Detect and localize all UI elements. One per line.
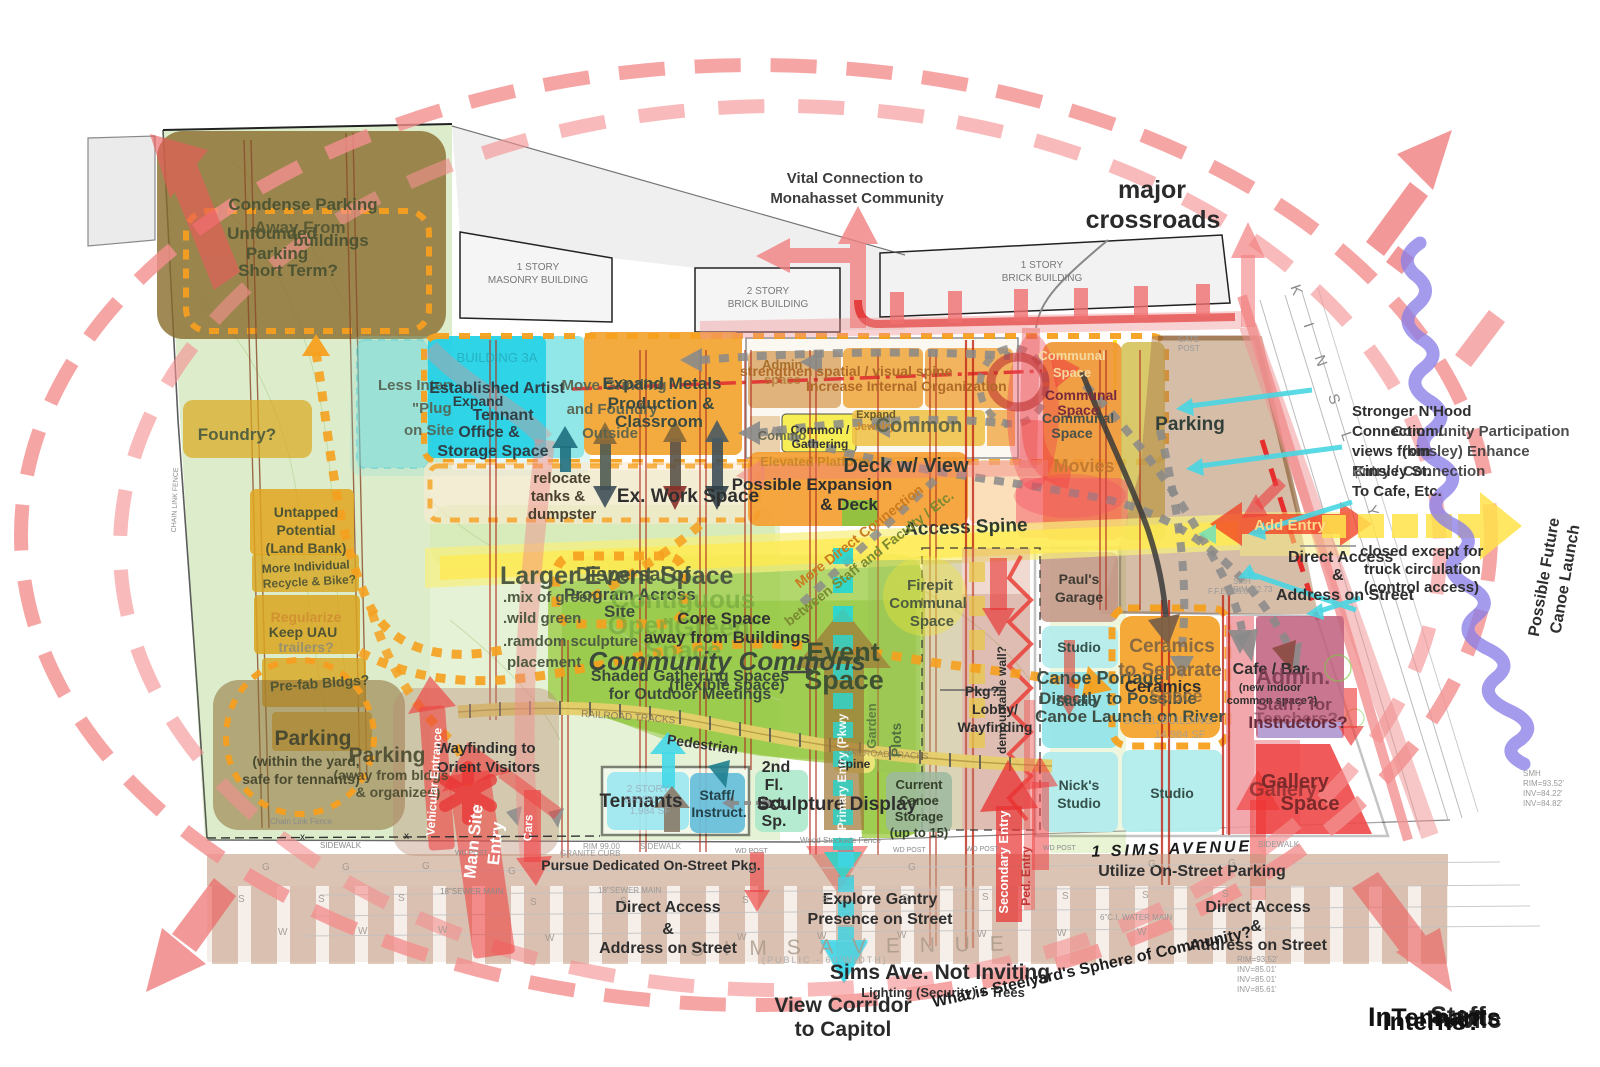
svg-text:Increase Internal Organization: Increase Internal Organization — [806, 378, 1007, 394]
svg-text:S: S — [982, 892, 989, 903]
svg-text:INV=84.82': INV=84.82' — [1523, 799, 1563, 808]
svg-text:Secondary Entry: Secondary Entry — [996, 810, 1011, 914]
svg-text:18"SEWER MAIN: 18"SEWER MAIN — [440, 887, 504, 896]
svg-text:2 STORY: 2 STORY — [627, 784, 670, 795]
svg-text:Space: Space — [1051, 425, 1092, 441]
svg-text:Direct Access: Direct Access — [1205, 899, 1310, 916]
svg-text:Communal: Communal — [1045, 387, 1117, 403]
svg-text:Direct Access: Direct Access — [615, 899, 720, 916]
svg-text:W: W — [438, 925, 448, 936]
svg-text:Monahasset Community: Monahasset Community — [770, 190, 944, 207]
svg-text:W: W — [545, 933, 555, 944]
svg-text:space: space — [764, 372, 801, 387]
svg-text:Garden: Garden — [864, 703, 879, 749]
svg-text:Keep UAU: Keep UAU — [269, 624, 337, 640]
svg-text:Space: Space — [910, 613, 954, 630]
svg-text:Movies: Movies — [1053, 456, 1114, 476]
svg-text:"Plug: "Plug — [412, 400, 452, 417]
svg-text:G: G — [422, 861, 430, 872]
svg-text:Space: Space — [1053, 365, 1091, 380]
svg-text:S: S — [318, 894, 325, 905]
svg-text:Ceramics: Ceramics — [1129, 636, 1215, 657]
svg-text:Potential: Potential — [276, 522, 335, 538]
svg-text:Primary Entry (Pkwy: Primary Entry (Pkwy — [835, 713, 849, 830]
svg-text:S: S — [902, 893, 909, 904]
svg-text:6"C.I. WATER MAIN: 6"C.I. WATER MAIN — [1100, 913, 1172, 922]
svg-text:SMH: SMH — [1523, 769, 1541, 778]
svg-text:Instruct.: Instruct. — [691, 804, 746, 820]
svg-text:G: G — [908, 862, 916, 873]
svg-text:relocate: relocate — [533, 470, 591, 487]
svg-text:G: G — [1148, 859, 1156, 870]
svg-text:2nd: 2nd — [762, 759, 790, 776]
svg-text:&: & — [1332, 567, 1344, 584]
svg-text:Presence on Street: Presence on Street — [808, 911, 954, 928]
svg-text:Tennant: Tennant — [472, 407, 534, 424]
svg-text:Studio: Studio — [1150, 785, 1194, 801]
svg-text:Address on Street: Address on Street — [599, 940, 737, 957]
svg-text:Foundry?: Foundry? — [198, 425, 276, 444]
svg-text:Canoe: Canoe — [899, 793, 939, 808]
svg-text:Pkg?: Pkg? — [965, 683, 999, 699]
svg-text:& Deck: & Deck — [820, 495, 878, 514]
svg-text:&: & — [1250, 918, 1262, 935]
svg-text:(kinsley) Enhance: (kinsley) Enhance — [1402, 443, 1530, 460]
svg-text:on Site: on Site — [404, 422, 454, 439]
svg-text:WD POST: WD POST — [893, 847, 926, 854]
svg-text:to Capitol: to Capitol — [795, 1018, 892, 1041]
svg-text:In: In — [1368, 1002, 1392, 1032]
svg-text:View Corridor: View Corridor — [774, 994, 911, 1017]
svg-text:WD POST: WD POST — [455, 850, 488, 857]
svg-text:Classroom: Classroom — [615, 412, 703, 431]
svg-text:MASONRY BUILDING: MASONRY BUILDING — [488, 275, 588, 286]
svg-text:BUILDING 3A: BUILDING 3A — [457, 350, 538, 365]
svg-text:2 STORY: 2 STORY — [747, 286, 790, 297]
svg-text:Vital Connection to: Vital Connection to — [787, 170, 923, 187]
svg-text:18"SEWER MAIN: 18"SEWER MAIN — [598, 886, 662, 895]
svg-text:G: G — [1228, 858, 1236, 869]
svg-text:S: S — [398, 893, 405, 904]
svg-text:away from Buildings: away from Buildings — [644, 628, 810, 647]
svg-text:RIM=93.52': RIM=93.52' — [1237, 955, 1278, 964]
svg-text:Staff/: Staff/ — [700, 787, 735, 803]
svg-text:S: S — [530, 897, 537, 908]
svg-text:Parking: Parking — [348, 744, 425, 767]
svg-text:BRICK BUILDING: BRICK BUILDING — [728, 299, 809, 310]
svg-text:S: S — [1222, 889, 1229, 900]
svg-text:Studio: Studio — [1057, 795, 1101, 811]
svg-text:for Outdoor Meetings: for Outdoor Meetings — [609, 686, 772, 703]
svg-text:Current: Current — [896, 777, 944, 792]
svg-text:Sp.: Sp. — [762, 813, 787, 830]
svg-text:Stronger N'Hood: Stronger N'Hood — [1352, 403, 1471, 420]
svg-text:Entry / Connection: Entry / Connection — [1352, 463, 1485, 480]
svg-text:Studio: Studio — [1056, 694, 1096, 709]
svg-text:major: major — [1118, 176, 1186, 204]
svg-text:BRICK: BRICK — [625, 795, 656, 806]
svg-text:Garage: Garage — [1055, 589, 1103, 605]
svg-text:Event: Event — [806, 637, 880, 667]
svg-text:1 STORY: 1 STORY — [1021, 260, 1064, 271]
svg-text:Untapped: Untapped — [274, 504, 339, 520]
svg-text:Orient Visitors: Orient Visitors — [437, 759, 540, 776]
svg-text:Address on Street: Address on Street — [1276, 587, 1414, 604]
svg-text:(Land Bank): (Land Bank) — [266, 540, 347, 556]
svg-text:INV=85.61': INV=85.61' — [1237, 985, 1277, 994]
svg-text:Condense Parking: Condense Parking — [228, 195, 377, 214]
svg-text:W: W — [737, 932, 747, 943]
svg-text:SIDEWALK: SIDEWALK — [320, 841, 362, 850]
svg-text:STEEL BUILDING: STEEL BUILDING — [1123, 715, 1212, 727]
svg-text:INV=85.01': INV=85.01' — [1237, 965, 1277, 974]
svg-text:Communal: Communal — [1038, 348, 1105, 363]
svg-text:W: W — [977, 929, 987, 940]
svg-text:SIDEWALK: SIDEWALK — [640, 842, 682, 851]
svg-text:tanks &: tanks & — [531, 488, 585, 505]
svg-text:(up to 15): (up to 15) — [890, 825, 949, 840]
svg-text:placement: placement — [507, 654, 581, 671]
svg-text:SIDEWALK: SIDEWALK — [1258, 840, 1300, 849]
svg-text:14,984 SF: 14,984 SF — [1155, 729, 1206, 741]
svg-text:Office &: Office & — [458, 424, 520, 441]
svg-text:Firepit: Firepit — [907, 577, 953, 594]
svg-text:WD POST: WD POST — [966, 846, 999, 853]
svg-text:W: W — [278, 927, 288, 938]
svg-text:Community Participation: Community Participation — [1392, 423, 1570, 440]
svg-text:Commo: Commo — [758, 428, 806, 443]
svg-text:Space: Space — [1281, 793, 1340, 815]
svg-text:Production &: Production & — [608, 394, 715, 413]
svg-text:dumpster: dumpster — [528, 506, 597, 523]
svg-text:Core Space: Core Space — [677, 609, 771, 628]
svg-text:Chain Link Fence: Chain Link Fence — [270, 817, 333, 826]
svg-text:F.F.E.=96.04: F.F.E.=96.04 — [1208, 587, 1253, 596]
svg-text:crossroads: crossroads — [1086, 206, 1221, 234]
svg-text:Space: Space — [804, 665, 884, 695]
svg-text:S: S — [620, 896, 627, 907]
svg-text:RIM=93.52': RIM=93.52' — [1523, 779, 1564, 788]
svg-text:G: G — [342, 862, 350, 873]
svg-text:Paul's: Paul's — [1059, 571, 1100, 587]
svg-text:Expand Metals: Expand Metals — [602, 374, 721, 393]
svg-text:Storage: Storage — [895, 809, 943, 824]
svg-text:Possible Expansion: Possible Expansion — [732, 475, 893, 494]
svg-text:W: W — [817, 931, 827, 942]
svg-text:&: & — [662, 921, 674, 938]
svg-text:S: S — [1062, 891, 1069, 902]
svg-text:S: S — [822, 894, 829, 905]
svg-text:Wood Stockade Fence: Wood Stockade Fence — [800, 836, 881, 845]
svg-text:Fl.: Fl. — [765, 777, 784, 794]
svg-text:.wild green: .wild green — [503, 610, 581, 627]
svg-text:Storage Space: Storage Space — [437, 443, 548, 460]
svg-text:Deck w/ View: Deck w/ View — [843, 455, 969, 477]
svg-text:1,984 SF: 1,984 SF — [630, 806, 671, 817]
svg-text:demountable wall?: demountable wall? — [995, 646, 1009, 754]
svg-text:WD POST: WD POST — [735, 848, 768, 855]
svg-text:G: G — [508, 866, 516, 877]
svg-text:Pursue Dedicated On-Street Pkg: Pursue Dedicated On-Street Pkg. — [541, 857, 760, 873]
svg-text:W: W — [897, 930, 907, 941]
svg-text:Direct Access: Direct Access — [1288, 549, 1393, 566]
svg-text:S: S — [1142, 890, 1149, 901]
svg-text:Explore Gantry: Explore Gantry — [823, 891, 938, 908]
svg-text:Studio: Studio — [1057, 639, 1101, 655]
svg-text:Add Entry: Add Entry — [1254, 517, 1326, 534]
svg-text:G: G — [748, 864, 756, 875]
svg-text:W: W — [1137, 927, 1147, 938]
svg-text:S: S — [742, 895, 749, 906]
svg-text:Short Term?: Short Term? — [238, 261, 338, 280]
svg-text:Communal: Communal — [889, 595, 967, 612]
svg-text:Parking: Parking — [274, 727, 351, 750]
svg-text:INV=85.01': INV=85.01' — [1237, 975, 1277, 984]
svg-text:Cars: Cars — [521, 814, 536, 841]
svg-text:Nick's: Nick's — [1059, 777, 1100, 793]
svg-text:Instructors?: Instructors? — [1248, 713, 1347, 732]
svg-text:WD POST: WD POST — [1043, 845, 1076, 852]
svg-text:S: S — [238, 894, 245, 905]
svg-text:GATE: GATE — [1178, 335, 1199, 344]
svg-text:Ped. Entry: Ped. Entry — [1019, 846, 1033, 906]
svg-text:Utilize On-Street Parking: Utilize On-Street Parking — [1098, 863, 1286, 880]
svg-text:Admin.: Admin. — [1256, 664, 1331, 689]
svg-text:Dispersal of: Dispersal of — [576, 564, 691, 586]
svg-text:G: G — [262, 862, 270, 873]
svg-text:.mix of green: .mix of green — [503, 589, 596, 606]
svg-text:1 STORY: 1 STORY — [517, 262, 560, 273]
svg-text:Parking: Parking — [1155, 414, 1225, 435]
svg-text:BRICK BUILDING: BRICK BUILDING — [1002, 273, 1083, 284]
svg-text:x: x — [300, 832, 305, 843]
svg-text:INV=84.22': INV=84.22' — [1523, 789, 1563, 798]
svg-text:Common: Common — [876, 415, 963, 437]
svg-text:W: W — [1057, 928, 1067, 939]
svg-text:RIM 99.00: RIM 99.00 — [583, 842, 620, 851]
svg-text:Regularize: Regularize — [271, 609, 342, 625]
svg-text:Communal: Communal — [1042, 410, 1114, 426]
svg-text:W: W — [358, 926, 368, 937]
svg-text:trailers?: trailers? — [278, 639, 333, 655]
svg-text:Space: Space — [1149, 686, 1202, 706]
svg-text:Wayfinding to: Wayfinding to — [437, 740, 536, 757]
svg-text:Staff: Staff — [1430, 1002, 1486, 1030]
svg-text:POST: POST — [1178, 344, 1200, 353]
svg-text:x: x — [404, 831, 409, 842]
